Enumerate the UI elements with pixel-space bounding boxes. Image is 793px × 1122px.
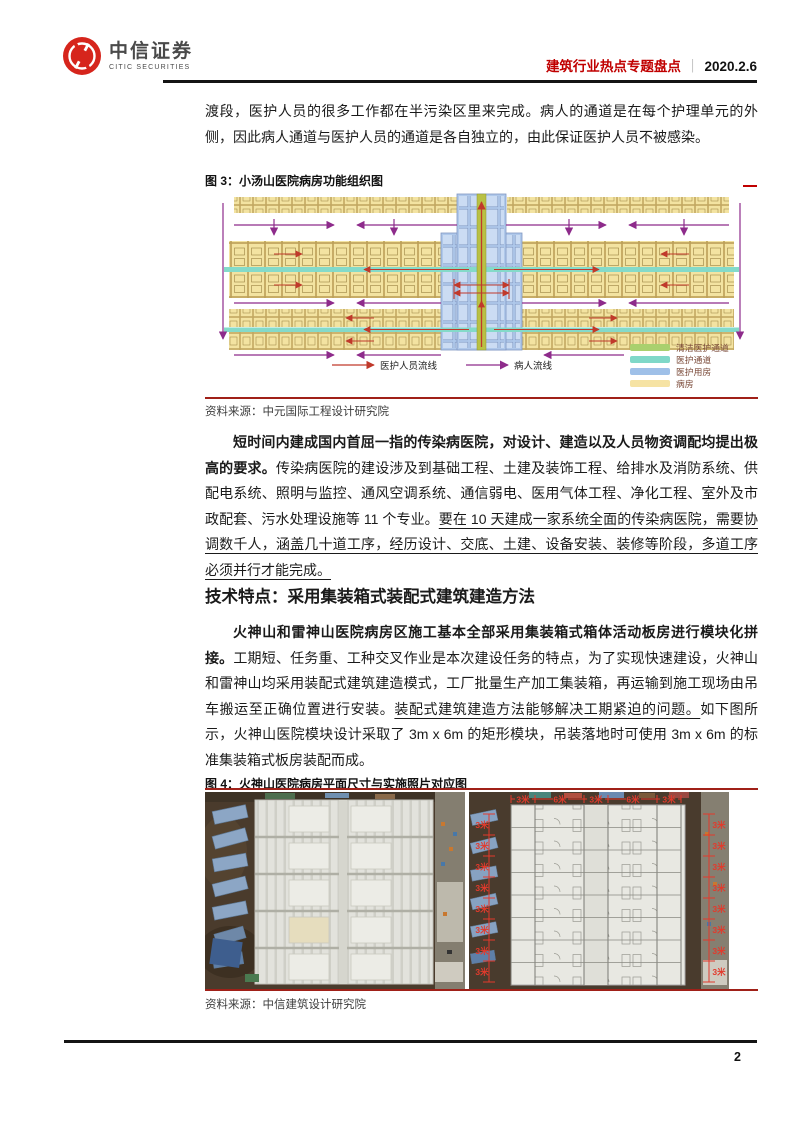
dim-right: 3米 (712, 862, 726, 872)
footer-rule (64, 1040, 757, 1043)
aerial-photo-image (205, 792, 465, 989)
dim-left: 3米 (475, 946, 489, 956)
figure3-image: 医护人员流线 病人流线 清洁医护通道 医护通道 医护用房 病房 (205, 189, 758, 396)
figure4-top-rule (205, 788, 758, 790)
dim-left: 3米 (475, 925, 489, 935)
page-number: 2 (734, 1050, 741, 1064)
figure4-source: 资料来源：中信建筑设计研究院 (205, 996, 758, 1012)
report-title: 建筑行业热点专题盘点 (546, 59, 681, 74)
figure4-images: 3米 6米 3米 6米 3米 3米 3米 3米 3米 3米 3米 3米 3米 3… (205, 792, 758, 989)
legend-label-clean-corridor: 清洁医护通道 (676, 342, 729, 353)
paragraph-1: 渡段，医护人员的很多工作都在半污染区里来完成。病人的通道是在每个护理单元的外侧，… (205, 99, 758, 150)
citic-logo: 中信证券 CITIC SECURITIES (62, 36, 193, 76)
dim-left: 3米 (475, 862, 489, 872)
aerial-photo (205, 792, 465, 994)
paragraph-3-underline: 装配式建筑建造方法能够解决工期紧迫的问题。 (394, 701, 700, 717)
logo-text: 中信证券 CITIC SECURITIES (109, 42, 193, 71)
figure4-bottom-rule (205, 989, 758, 991)
dim-right: 3米 (712, 904, 726, 914)
report-page: 中信证券 CITIC SECURITIES 建筑行业热点专题盘点｜2020.2.… (0, 0, 793, 1122)
header-rule (163, 80, 757, 83)
citic-logo-icon (62, 36, 102, 76)
section-heading: 技术特点：采用集装箱式装配式建筑建造方法 (205, 583, 758, 607)
dim-top-2: 6米 (553, 795, 567, 805)
figure3-caption-rule (743, 185, 757, 187)
legend-swatch-medical-corridor (630, 356, 670, 363)
paragraph-2: 短时间内建成国内首屈一指的传染病医院，对设计、建造以及人员物资调配均提出极高的要… (205, 430, 758, 583)
dim-right: 3米 (712, 946, 726, 956)
dim-left: 3米 (475, 967, 489, 977)
dim-right: 3米 (712, 883, 726, 893)
legend-swatch-wards (630, 380, 670, 387)
dim-left: 3米 (475, 883, 489, 893)
annotated-plan-image: 3米 6米 3米 6米 3米 3米 3米 3米 3米 3米 3米 3米 3米 3… (469, 792, 729, 989)
dim-right: 3米 (712, 925, 726, 935)
staff-flow-label: 医护人员流线 (380, 360, 438, 372)
dim-top-4: 6米 (626, 795, 640, 805)
paragraph-1-text: 渡段，医护人员的很多工作都在半污染区里来完成。病人的通道是在每个护理单元的外侧，… (205, 103, 758, 145)
legend-label-medical-rooms: 医护用房 (676, 366, 711, 377)
dim-left: 3米 (475, 904, 489, 914)
legend-swatch-medical-rooms (630, 368, 670, 375)
dim-right: 3米 (712, 841, 726, 851)
dim-left: 3米 (475, 820, 489, 830)
annotated-plan-photo: 3米 6米 3米 6米 3米 3米 3米 3米 3米 3米 3米 3米 3米 3… (469, 792, 729, 994)
logo-text-en: CITIC SECURITIES (109, 64, 193, 71)
paragraph-3: 火神山和雷神山医院病房区施工基本全部采用集装箱式箱体活动板房进行模块化拼接。工期… (205, 620, 758, 773)
dim-top-3: 3米 (589, 795, 603, 805)
patient-flow-label: 病人流线 (514, 360, 553, 372)
legend-label-wards: 病房 (676, 378, 694, 389)
title-separator: ｜ (681, 59, 705, 74)
hospital-ward-plan-diagram: 医护人员流线 病人流线 清洁医护通道 医护通道 医护用房 病房 (214, 189, 749, 394)
legend-label-medical-corridor: 医护通道 (676, 354, 711, 365)
dim-right: 3米 (712, 820, 726, 830)
figure3-bottom-rule (205, 397, 758, 399)
logo-text-cn: 中信证券 (109, 42, 193, 61)
figure3-source: 资料来源：中元国际工程设计研究院 (205, 403, 758, 419)
report-date: 2020.2.6 (704, 59, 757, 74)
dim-top-1: 3米 (516, 795, 530, 805)
legend-swatch-clean-corridor (630, 344, 670, 351)
report-header-title: 建筑行业热点专题盘点｜2020.2.6 (546, 55, 757, 75)
dim-right: 3米 (712, 967, 726, 977)
dim-top-5: 3米 (662, 795, 676, 805)
figure3-caption: 图 3：小汤山医院病房功能组织图 (205, 172, 758, 189)
dim-left: 3米 (475, 841, 489, 851)
